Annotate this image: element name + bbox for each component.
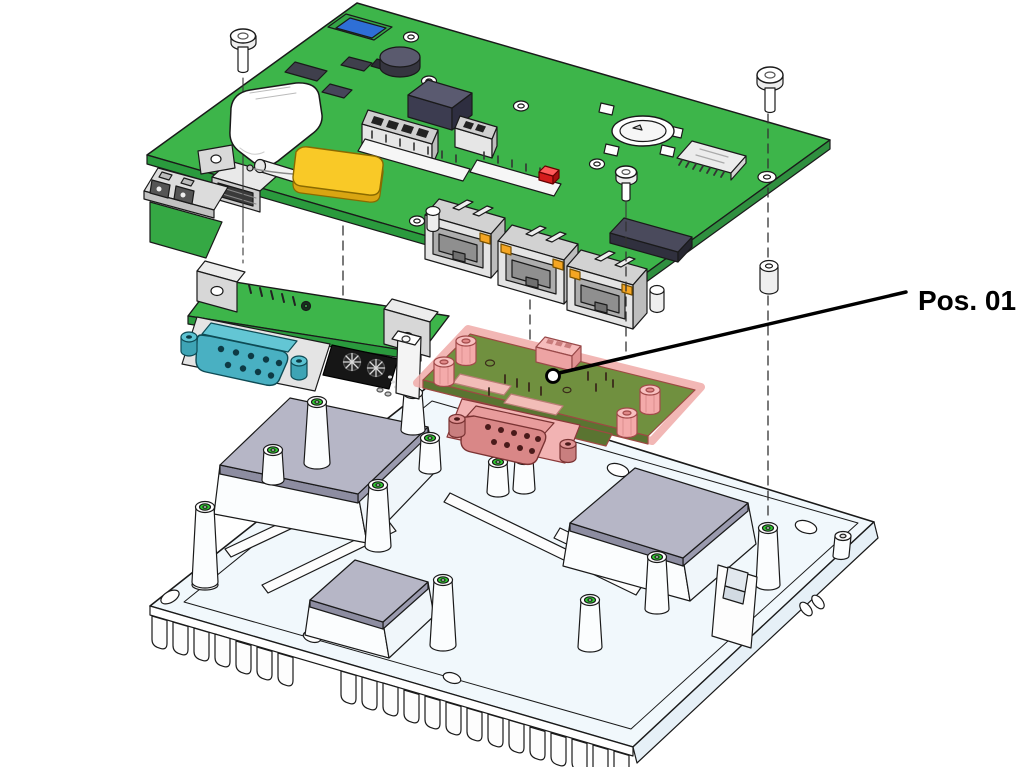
board-hole xyxy=(563,387,571,392)
jack-screw xyxy=(181,332,197,356)
screw xyxy=(231,29,257,73)
post xyxy=(756,523,780,591)
spacer xyxy=(426,207,440,232)
post xyxy=(487,457,509,498)
post xyxy=(192,502,218,591)
post xyxy=(419,433,441,475)
diagram-canvas: Pos. 01 xyxy=(0,0,1024,767)
post xyxy=(430,575,456,652)
callout-dot xyxy=(547,370,560,383)
post xyxy=(304,397,330,470)
post xyxy=(262,445,284,486)
board-hole xyxy=(486,360,495,366)
status-led xyxy=(539,166,559,184)
retention-clip xyxy=(712,565,757,648)
screw xyxy=(757,67,783,113)
spacer xyxy=(760,261,778,295)
jack-screw xyxy=(449,415,465,438)
jack-screw xyxy=(291,356,307,380)
jack-screw xyxy=(560,440,576,463)
post xyxy=(645,552,669,615)
inductor xyxy=(380,47,420,77)
serial-daughterboard xyxy=(181,261,449,399)
post xyxy=(365,480,391,553)
exploded-assembly-diagram: Pos. 01 xyxy=(0,0,1024,767)
post xyxy=(578,595,602,653)
callout-label: Pos. 01 xyxy=(918,285,1016,316)
spacer xyxy=(650,286,664,313)
boss xyxy=(833,532,851,560)
